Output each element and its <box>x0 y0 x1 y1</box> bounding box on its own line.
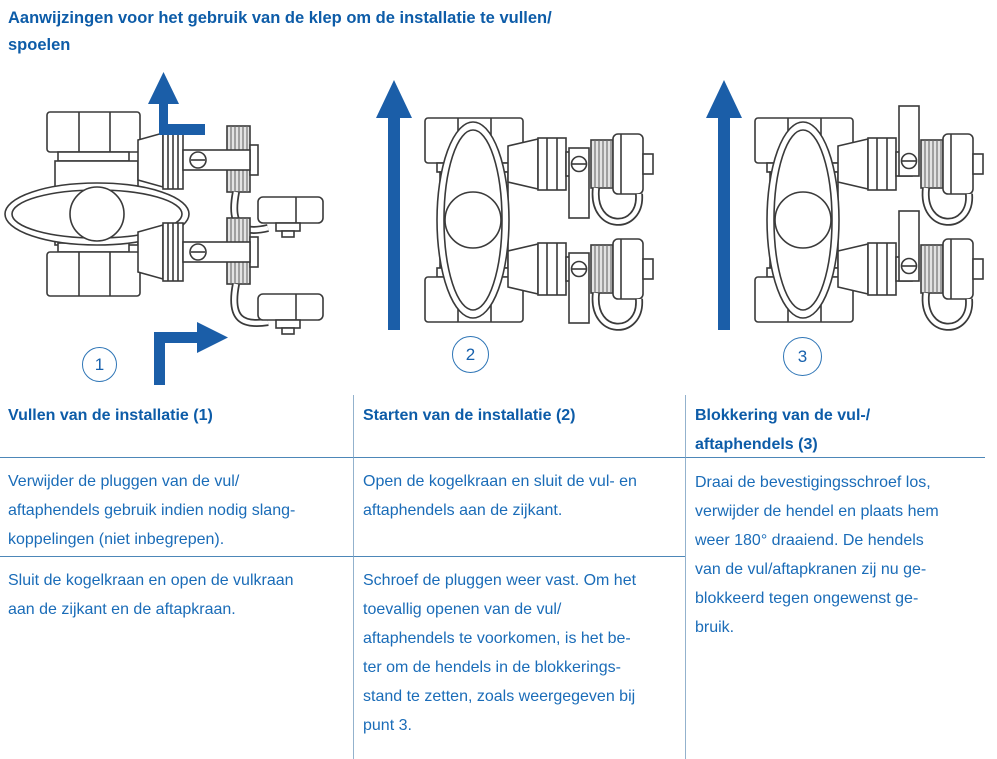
cell-blokkering: Draai de bevestigingsschroef los, verwij… <box>685 458 985 759</box>
lower-drain-port <box>138 218 323 334</box>
table-header-vullen: Vullen van de installatie (1) <box>0 395 353 458</box>
lower-drain-port <box>508 239 653 327</box>
arrow-right-icon <box>154 322 228 385</box>
instruction-table: Vullen van de installatie (1) Starten va… <box>0 395 997 759</box>
step-1-badge: 1 <box>82 347 117 382</box>
upper-fill-port <box>508 134 653 222</box>
table-header-blokkering: Blokkering van de vul-/ aftaphendels (3) <box>685 395 985 458</box>
valve-diagram-2 <box>340 60 670 390</box>
table-header-starten: Starten van de installatie (2) <box>353 395 685 458</box>
cell-starten-step2: Schroef de pluggen weer vast. Om het toe… <box>353 557 685 759</box>
valve-open-drawing <box>340 60 670 390</box>
arrow-up-icon <box>376 80 412 330</box>
page-title: Aanwijzingen voor het gebruik van de kle… <box>8 5 648 59</box>
step-3-badge: 3 <box>783 337 822 376</box>
ball-valve-handle-open <box>767 122 839 318</box>
cell-starten-step1: Open de kogelkraan en sluit de vul- en a… <box>353 458 685 557</box>
valve-diagram-1 <box>0 60 340 390</box>
upper-fill-port-locked <box>838 106 983 222</box>
manual-page: Aanwijzingen voor het gebruik van de kle… <box>0 0 997 759</box>
arrow-up-icon <box>706 80 742 330</box>
cell-vullen-step1: Verwijder de pluggen van de vul/ aftaphe… <box>0 458 353 557</box>
valve-locked-drawing <box>670 60 997 390</box>
valve-diagram-3 <box>670 60 997 390</box>
valve-closed-drawing <box>0 60 340 390</box>
cell-vullen-step2: Sluit de kogelkraan en open de vulkraan … <box>0 557 353 759</box>
step-2-badge: 2 <box>452 336 489 373</box>
lower-drain-port-locked <box>838 211 983 327</box>
arrow-up-icon <box>148 72 205 135</box>
ball-valve-handle-open <box>437 122 509 318</box>
